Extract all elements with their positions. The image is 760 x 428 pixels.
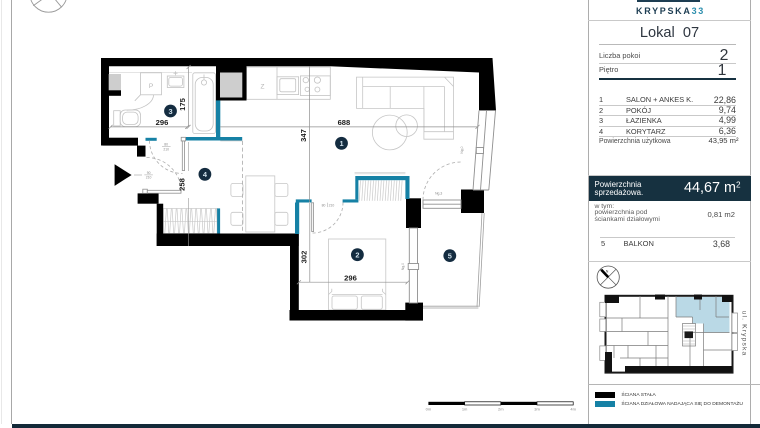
svg-text:80: 80: [322, 203, 326, 207]
svg-text:Z: Z: [261, 84, 265, 91]
svg-text:1: 1: [339, 139, 343, 148]
svg-text:3m: 3m: [534, 407, 540, 412]
svg-text:258: 258: [178, 178, 187, 191]
svg-text:210: 210: [329, 203, 335, 207]
svg-text:2: 2: [355, 251, 359, 260]
svg-text:5: 5: [448, 252, 452, 261]
svg-text:4m: 4m: [570, 407, 576, 412]
svg-text:296: 296: [156, 118, 169, 127]
svg-text:N: N: [606, 270, 609, 274]
svg-text:1m: 1m: [462, 407, 468, 412]
svg-text:Ng,3: Ng,3: [435, 192, 442, 196]
svg-text:175: 175: [178, 97, 187, 110]
svg-text:688: 688: [338, 118, 351, 127]
svg-text:80: 80: [164, 143, 168, 147]
svg-text:90: 90: [147, 171, 151, 175]
svg-text:Ng,0: Ng,0: [401, 263, 405, 270]
svg-text:347: 347: [299, 129, 308, 142]
svg-text:210: 210: [146, 176, 152, 180]
svg-text:Ng,0: Ng,0: [460, 146, 464, 153]
svg-text:296: 296: [344, 273, 357, 282]
svg-text:0m: 0m: [426, 407, 432, 412]
svg-text:302: 302: [299, 251, 308, 264]
svg-text:P: P: [149, 83, 153, 90]
svg-text:210: 210: [163, 147, 169, 151]
svg-text:2m: 2m: [498, 407, 504, 412]
svg-text:3: 3: [168, 107, 172, 116]
